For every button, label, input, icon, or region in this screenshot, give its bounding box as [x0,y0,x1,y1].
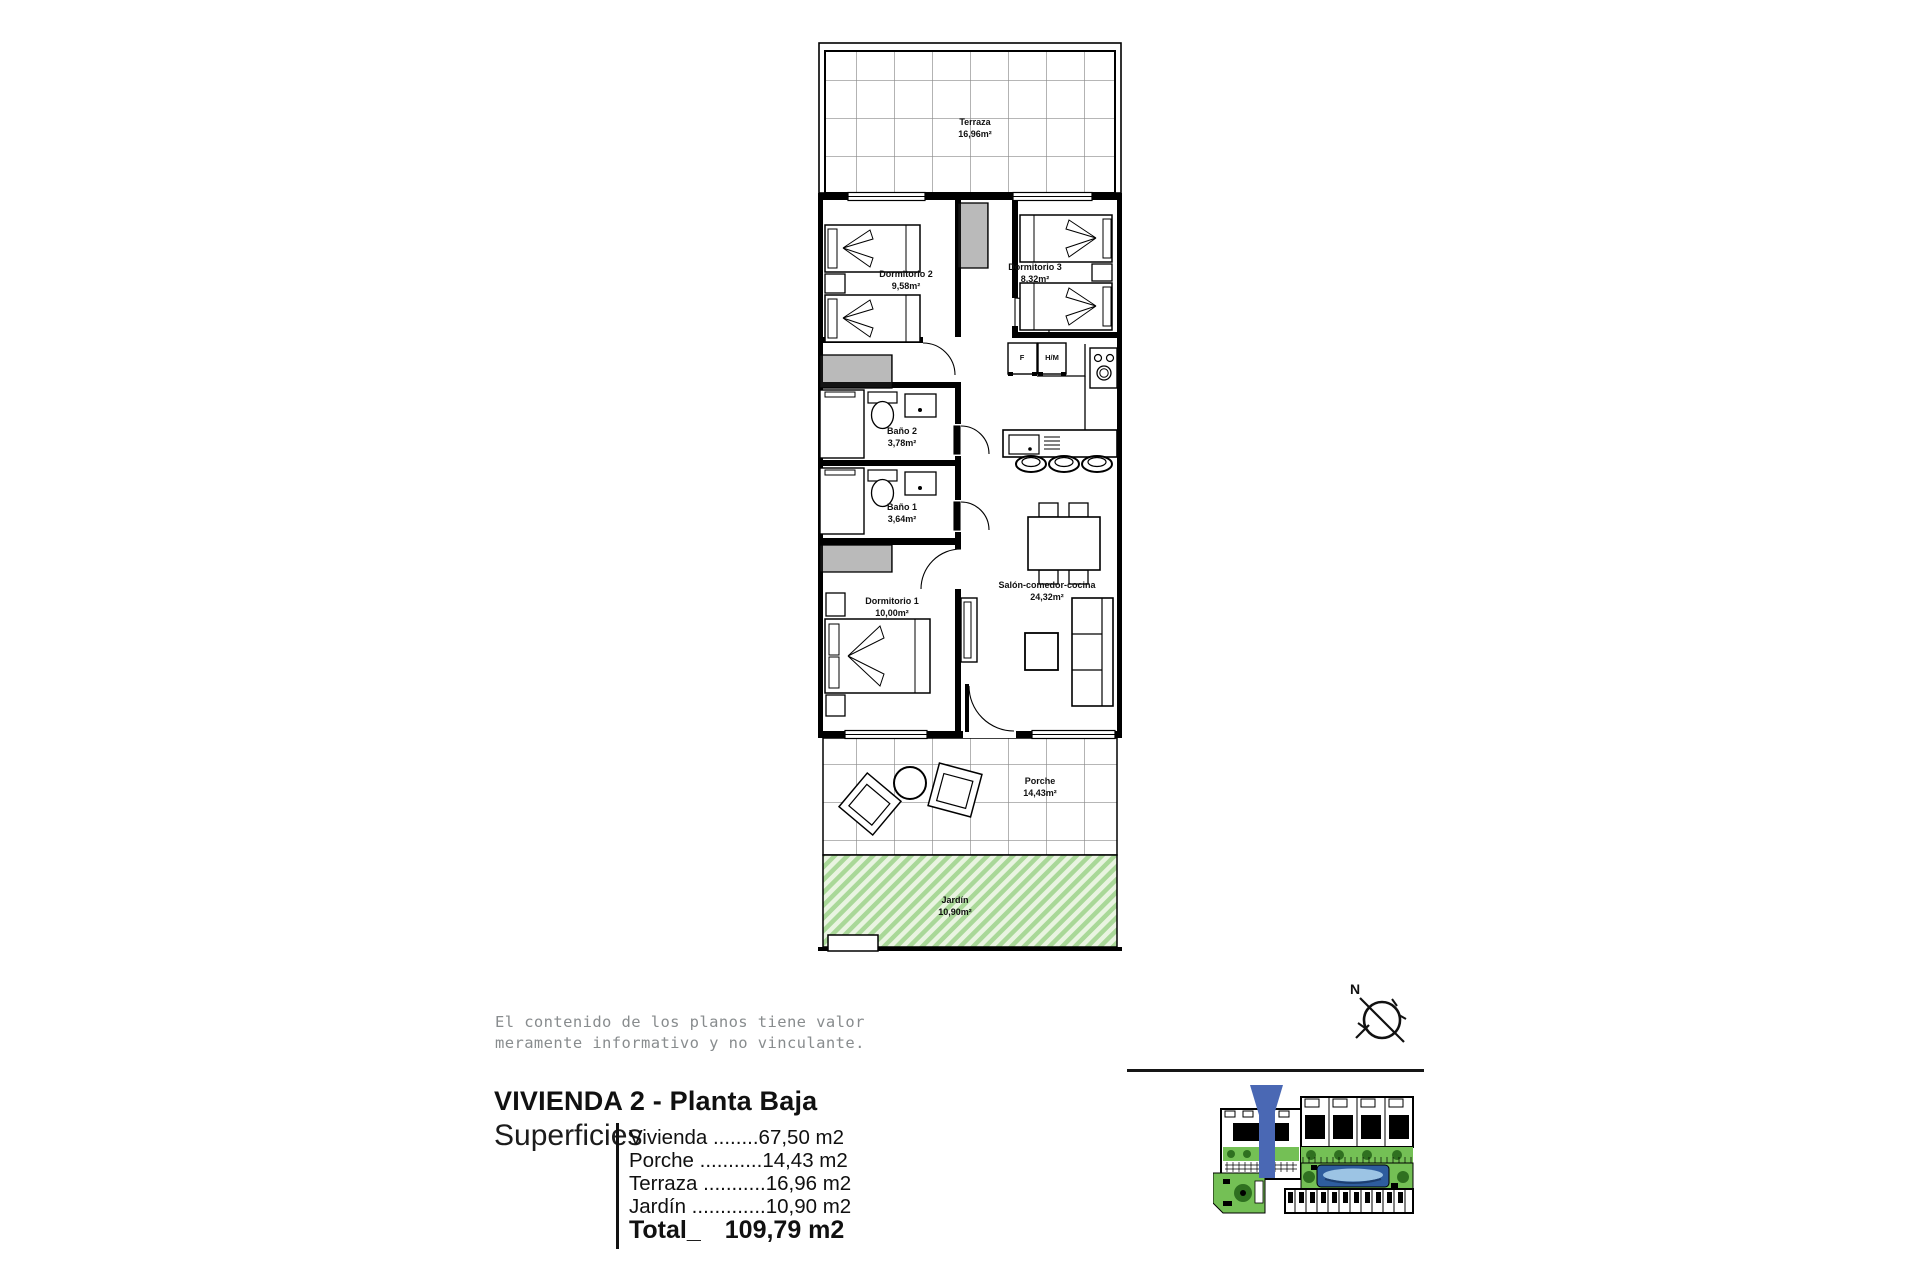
separator-line [1127,1069,1424,1072]
site-plan-thumbnail [1213,1085,1421,1215]
surface-row-porche: Porche ...........14,43 m2 [629,1149,851,1172]
title-block-divider [616,1123,619,1249]
floor-plan: Terraza16,96m² Dormitorio 29,58m² Dormit… [818,42,1122,958]
surface-row-jardin: Jardín .............10,90 m2 [629,1195,851,1218]
north-compass-icon: N [1328,968,1438,1068]
surface-total-value: 109,79 m2 [725,1216,845,1244]
room-label-dormitorio1: Dormitorio 110,00m² [822,596,962,619]
room-label-porche: Porche14,43m² [970,776,1110,799]
room-label-terraza: Terraza16,96m² [905,117,1045,140]
room-label-dormitorio3: Dormitorio 38,32m² [965,262,1105,285]
room-label-jardin: Jardín10,90m² [885,895,1025,918]
compass-north-label: N [1350,981,1360,997]
surface-total-label: Total_ [629,1216,701,1244]
room-label-salon: Salón-comedor-cocina24,32m² [977,580,1117,603]
surface-row-vivienda: Vivienda ........67,50 m2 [629,1126,851,1149]
floor-plan-drawing [818,42,1122,958]
room-label-dormitorio2: Dormitorio 29,58m² [836,269,976,292]
disclaimer-text: El contenido de los planos tiene valor m… [495,1012,865,1054]
kitchen [1003,343,1117,472]
surface-row-terraza: Terraza ...........16,96 m2 [629,1172,851,1195]
disclaimer-line2: meramente informativo y no vinculante. [495,1033,865,1054]
surface-total: Total_109,79 m2 [629,1216,844,1245]
appliance-label-washer: H/M [1032,353,1072,362]
surface-table: Vivienda ........67,50 m2 Porche .......… [629,1126,851,1218]
living-room-furniture [961,598,1113,706]
room-label-bano2: Baño 23,78m² [832,426,972,449]
dining-set [1028,503,1100,584]
page: Terraza16,96m² Dormitorio 29,58m² Dormit… [0,0,1920,1280]
page-title: VIVIENDA 2 - Planta Baja [494,1086,817,1117]
room-label-bano1: Baño 13,64m² [832,502,972,525]
superficies-label: Superficies [494,1119,642,1153]
disclaimer-line1: El contenido de los planos tiene valor [495,1012,865,1033]
